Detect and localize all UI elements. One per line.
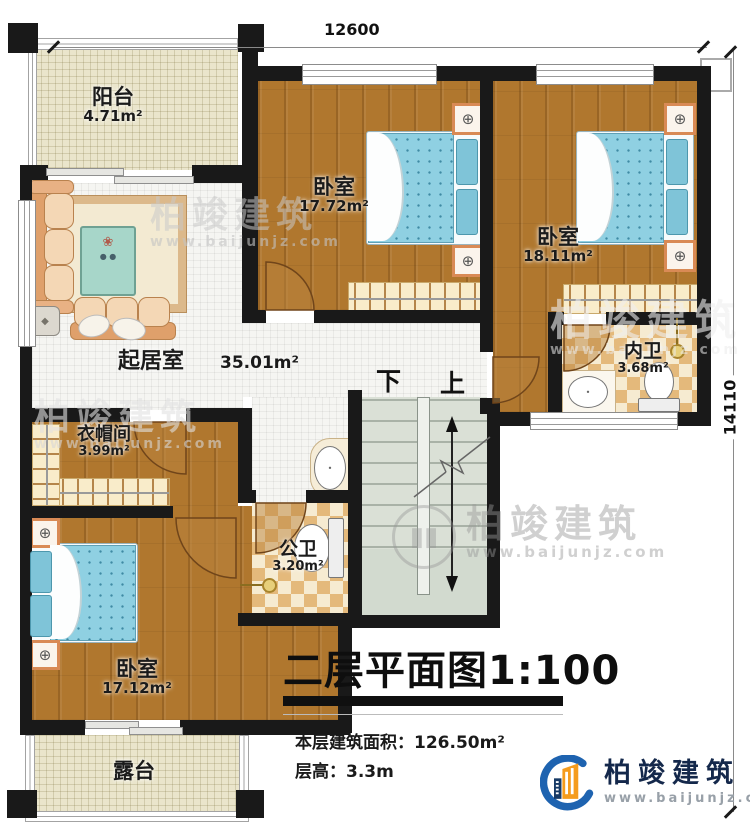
- wall: [548, 312, 564, 325]
- balcony-railing-left: [28, 48, 37, 172]
- wall: [242, 66, 304, 81]
- wall: [238, 408, 252, 503]
- label-bedroom-top: 卧室 17.72m²: [274, 176, 394, 215]
- wall: [20, 408, 130, 422]
- toilet-tank: [638, 398, 680, 412]
- wall: [242, 50, 258, 310]
- company-website: www.baijunjz.com: [604, 791, 750, 806]
- floor-area-text: 本层建筑面积：126.50m²: [295, 728, 505, 753]
- title-underline: [283, 696, 563, 706]
- washbasin: •: [314, 446, 346, 490]
- nightstand: ⊕: [30, 518, 60, 548]
- balcony-railing-top: [30, 38, 238, 50]
- stair-down-label: 下: [376, 362, 401, 398]
- wall: [314, 310, 480, 323]
- sofa-armrest: [28, 180, 74, 194]
- label-public-bath: 公卫 3.20m²: [240, 540, 356, 574]
- bed-pillow: [666, 139, 688, 185]
- wall: [348, 615, 500, 628]
- company-name: 柏竣建筑: [604, 760, 750, 787]
- wall: [606, 312, 697, 325]
- shower-head: [262, 578, 277, 593]
- balcony-sliding-door: [46, 168, 124, 176]
- nightstand: ⊕: [664, 240, 696, 272]
- sofa-cushion: [138, 297, 170, 327]
- pillar: [236, 790, 264, 818]
- label-bedroom-right: 卧室 18.11m²: [498, 226, 618, 265]
- nightstand: ⊕: [30, 640, 60, 670]
- company-logo: 柏竣建筑 www.baijunjz.com: [540, 755, 750, 811]
- label-ensuite-bath: 内卫 3.68m²: [583, 342, 703, 376]
- bed-pillow: [30, 551, 52, 593]
- bed-pillow: [456, 189, 478, 235]
- label-balcony: 阳台 4.71m²: [58, 86, 168, 125]
- wall: [480, 80, 493, 352]
- plan-title: 二层平面图1:100: [283, 638, 620, 696]
- terrace-sliding-door: [129, 727, 183, 735]
- sofa-cushion: [44, 193, 74, 229]
- dimension-top-value: 12600: [320, 20, 384, 39]
- label-terrace: 露台: [74, 760, 194, 782]
- sofa-cushion: [44, 229, 74, 265]
- wardrobe: [563, 284, 699, 314]
- stair-up-label: 上: [440, 364, 465, 400]
- wall: [192, 165, 243, 183]
- wall: [500, 412, 530, 426]
- nightstand: ⊕: [664, 103, 696, 135]
- terrace-railing-bottom: [25, 811, 249, 822]
- stair-stringer: [417, 397, 430, 595]
- window: [302, 64, 437, 85]
- window: [18, 200, 36, 347]
- wall: [348, 390, 362, 628]
- dimension-tick: [724, 45, 737, 58]
- floor-plan: ❀● ● ◆ ⊕ ⊕ ⊕ ⊕ ⊕ ⊕ • •: [0, 0, 750, 827]
- dimension-line-top: [55, 47, 707, 48]
- window: [536, 64, 654, 85]
- window: [530, 412, 678, 430]
- wall: [30, 506, 173, 518]
- wall: [20, 720, 85, 735]
- wall: [548, 325, 562, 412]
- label-bedroom-bottom: 卧室 17.12m²: [77, 658, 197, 697]
- wall: [676, 412, 711, 426]
- wall: [238, 490, 256, 503]
- coffee-table: ❀● ●: [80, 226, 136, 296]
- balcony-sliding-door: [114, 176, 194, 184]
- wall: [238, 613, 352, 626]
- pillar: [7, 790, 37, 818]
- pillar: [8, 23, 38, 53]
- sofa-cushion: [44, 265, 74, 301]
- bed-pillow: [30, 595, 52, 637]
- company-logo-icon: [540, 755, 596, 811]
- label-cloakroom: 衣帽间 3.99m²: [45, 426, 163, 459]
- title-underline-thin: [283, 714, 563, 715]
- label-living-room: 起居室 35.01m²: [118, 350, 299, 373]
- dimension-right-value: 14110: [720, 376, 739, 440]
- floor-height-text: 层高：3.3m: [295, 757, 394, 782]
- hall-floor: [493, 312, 548, 412]
- wall: [306, 490, 352, 503]
- washbasin: •: [568, 376, 608, 408]
- bed-pillow: [666, 189, 688, 235]
- cloakroom-closet: [56, 478, 170, 506]
- bed-pillow: [456, 139, 478, 185]
- wall: [435, 66, 536, 81]
- wall: [480, 398, 500, 414]
- wall: [487, 414, 500, 628]
- wall: [242, 310, 266, 323]
